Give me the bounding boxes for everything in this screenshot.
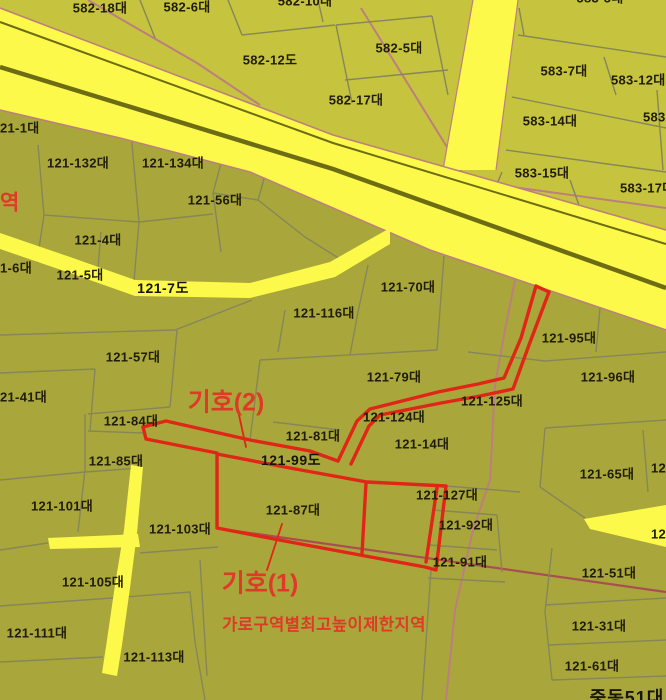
parcel-label: 582-17대 [329, 94, 384, 107]
parcel-label: 583-7대 [540, 65, 587, 78]
parcel-label-fragment: 1-6대 [0, 262, 32, 275]
parcel-label-fragment: 583-5대 [576, 0, 623, 5]
red-annotation-label: 기호(1) [222, 572, 299, 597]
parcel-label: 121-31대 [572, 620, 627, 633]
parcel-label: 121-113대 [123, 651, 184, 664]
parcel-label: 582-6대 [163, 1, 210, 14]
parcel-label: 121-79대 [367, 371, 422, 384]
parcel-label: 121-84대 [104, 415, 159, 428]
parcel-label: 121-127대 [416, 489, 478, 502]
parcel-label: 583-14대 [523, 115, 578, 128]
parcel-label: 121-111대 [7, 627, 68, 640]
parcel-label-fragment: 582-10대 [278, 0, 333, 8]
district-name-label: 중동51대 [590, 689, 665, 700]
parcel-label: 121-96대 [581, 371, 636, 384]
parcel-label: 583-12대 [611, 74, 666, 87]
parcel-label: 121-5대 [56, 269, 103, 282]
parcel-label: 121-56대 [188, 194, 243, 207]
parcel-label-fragment: 12 [651, 528, 666, 541]
parcel-label: 121-116대 [293, 307, 354, 320]
parcel-label: 121-61대 [565, 660, 620, 673]
parcel-label-fragment: 583 [643, 111, 666, 124]
parcel-label: 583-15대 [515, 167, 570, 180]
parcel-label: 583-17대 [620, 182, 666, 195]
parcel-label: 121-124대 [363, 411, 425, 424]
parcel-label: 121-101대 [31, 500, 93, 513]
parcel-label: 121-81대 [286, 430, 341, 443]
parcel-label-fragment: 21-1대 [0, 122, 39, 135]
parcel-label: 121-87대 [266, 504, 321, 517]
parcel-label: 121-65대 [580, 468, 635, 481]
parcel-label-fragment: 21-41대 [0, 391, 47, 404]
red-annotation-label: 기호(2) [188, 391, 265, 416]
parcel-label: 121-134대 [142, 157, 204, 170]
map-labels-layer: 582-18대582-6대582-10대583-5대582-5대582-12도5… [0, 0, 666, 700]
parcel-label: 121-95대 [542, 332, 597, 345]
parcel-label: 121-125대 [461, 395, 523, 408]
parcel-label: 121-85대 [89, 455, 144, 468]
parcel-label: 121-132대 [47, 157, 109, 170]
parcel-label-fragment: 12 [651, 462, 666, 475]
road-label: 121-7도 [137, 281, 189, 295]
map-canvas: 582-18대582-6대582-10대583-5대582-5대582-12도5… [0, 0, 666, 700]
red-zone-fragment: 역 [0, 193, 19, 214]
red-restriction-label: 가로구역별최고높이제한지역 [222, 617, 426, 634]
road-label: 121-99도 [261, 453, 321, 467]
parcel-label: 121-4대 [74, 234, 121, 247]
parcel-label: 121-51대 [582, 567, 637, 580]
parcel-label: 121-91대 [433, 556, 488, 569]
parcel-label: 121-70대 [381, 281, 436, 294]
parcel-label: 121-105대 [62, 576, 124, 589]
parcel-label: 121-92대 [439, 519, 494, 532]
parcel-label: 582-5대 [375, 42, 422, 55]
parcel-label: 121-57대 [106, 351, 161, 364]
parcel-label: 121-14대 [395, 438, 450, 451]
parcel-label: 582-18대 [73, 2, 128, 15]
parcel-label: 121-103대 [149, 523, 211, 536]
parcel-label: 582-12도 [243, 54, 298, 67]
